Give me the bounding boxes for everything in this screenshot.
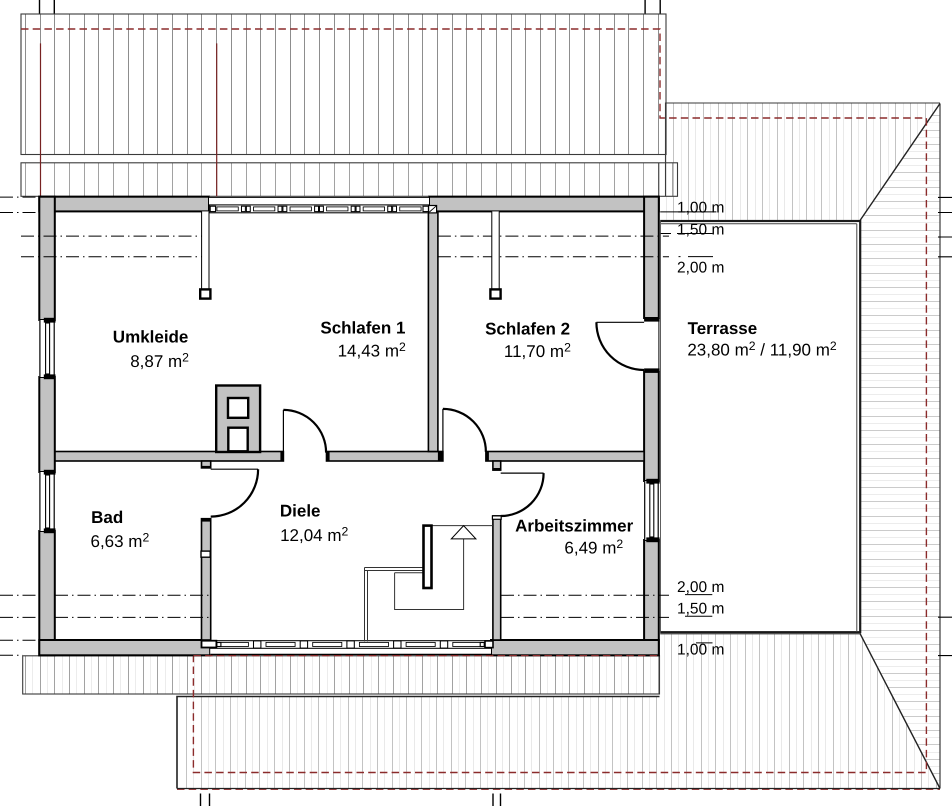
svg-text:12,04 m2: 12,04 m2 [280,524,348,545]
svg-text:6,49 m2: 6,49 m2 [564,537,623,558]
svg-text:Schlafen 2: Schlafen 2 [485,320,570,339]
svg-text:23,80 m2 / 11,90 m2: 23,80 m2 / 11,90 m2 [687,339,837,360]
svg-text:Schlafen 1: Schlafen 1 [320,319,405,338]
svg-text:11,70 m2: 11,70 m2 [504,340,571,361]
svg-text:Arbeitszimmer: Arbeitszimmer [515,516,633,535]
svg-text:8,87 m2: 8,87 m2 [130,350,189,371]
svg-text:2,00 m: 2,00 m [677,260,724,277]
svg-text:Bad: Bad [91,508,123,527]
svg-text:1,50 m: 1,50 m [677,600,724,617]
svg-text:1,50 m: 1,50 m [677,221,724,238]
svg-text:1,00 m: 1,00 m [677,200,724,217]
svg-text:Umkleide: Umkleide [113,328,189,347]
svg-text:14,43 m2: 14,43 m2 [338,340,406,361]
svg-text:2,00 m: 2,00 m [677,579,724,596]
svg-text:6,63 m2: 6,63 m2 [91,531,150,552]
svg-text:Terrasse: Terrasse [688,319,758,338]
svg-text:1,00 m: 1,00 m [677,642,724,659]
svg-text:Diele: Diele [280,501,321,520]
